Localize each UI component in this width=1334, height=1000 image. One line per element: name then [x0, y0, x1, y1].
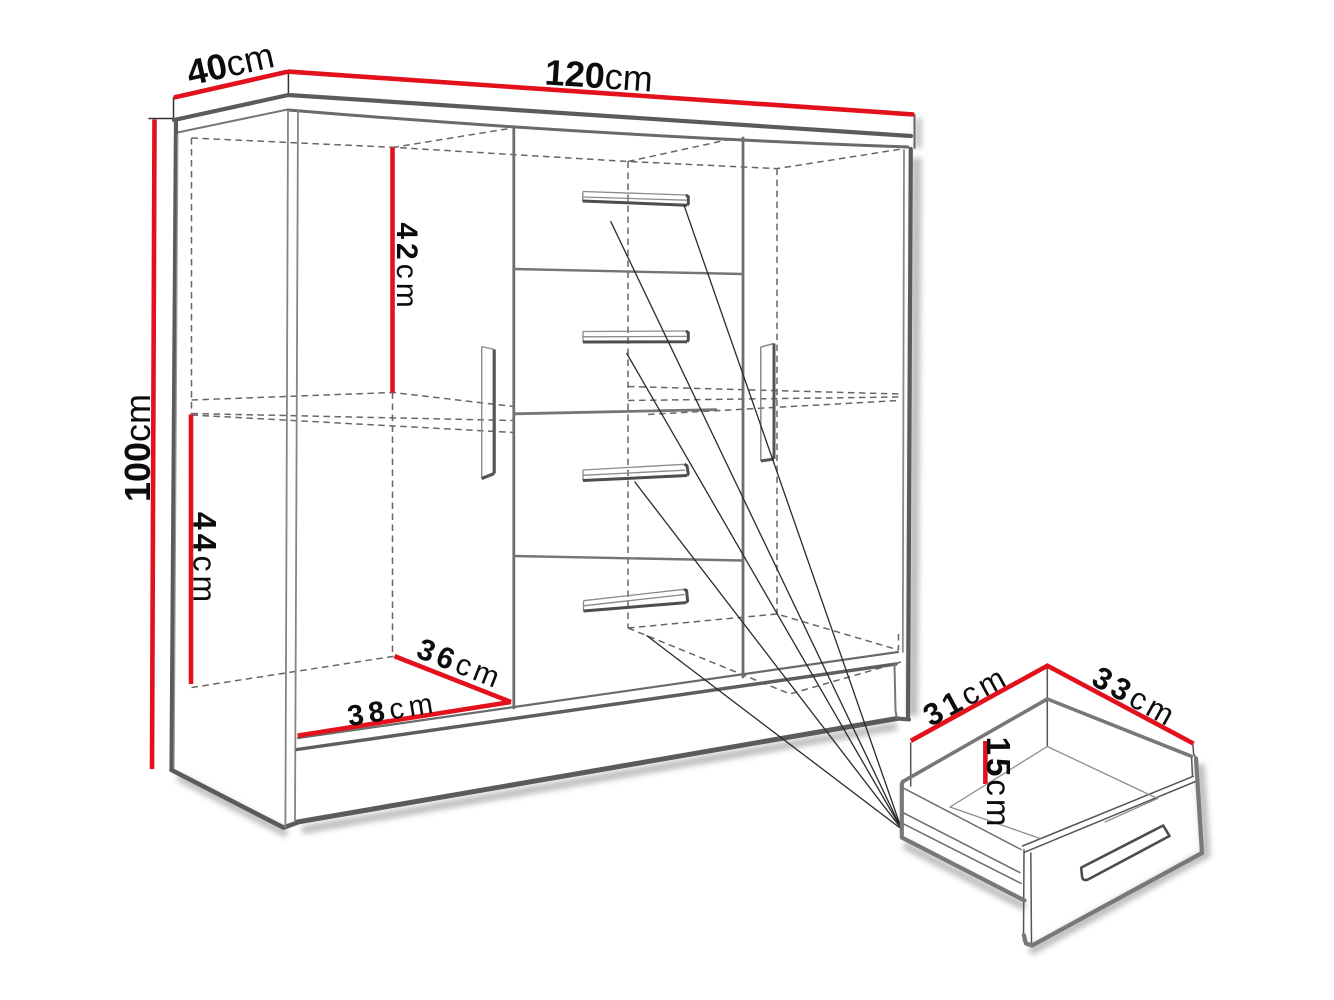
svg-text:120cm: 120cm — [544, 51, 655, 99]
svg-text:40cm: 40cm — [183, 34, 278, 93]
svg-text:44cm: 44cm — [187, 512, 223, 606]
svg-text:36cm: 36cm — [412, 632, 507, 695]
svg-text:100cm: 100cm — [117, 394, 158, 502]
svg-text:42cm: 42cm — [390, 222, 423, 311]
svg-text:38cm: 38cm — [345, 687, 440, 733]
svg-text:31cm: 31cm — [917, 658, 1014, 733]
svg-text:33cm: 33cm — [1086, 659, 1183, 734]
svg-text:15cm: 15cm — [980, 737, 1017, 830]
